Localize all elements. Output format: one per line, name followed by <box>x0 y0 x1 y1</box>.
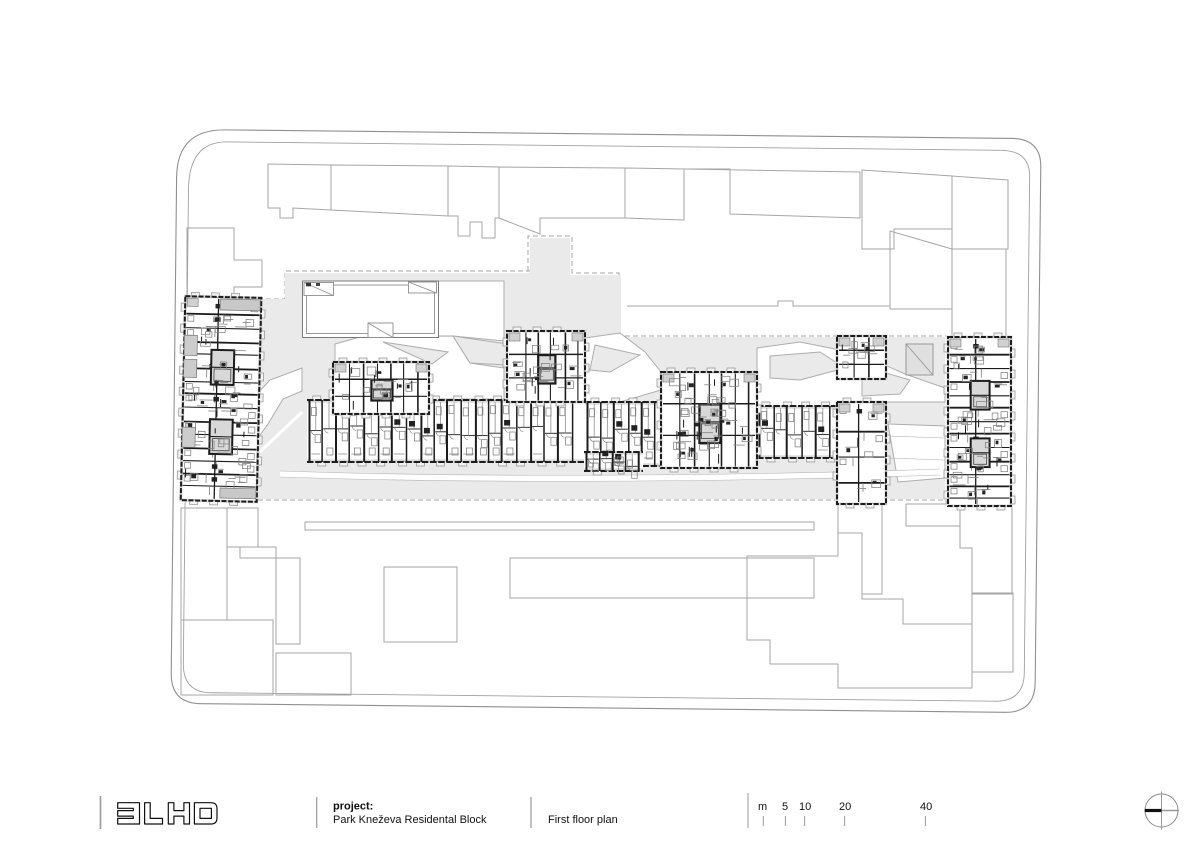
svg-text:20: 20 <box>839 801 851 813</box>
svg-text:First floor plan: First floor plan <box>548 814 618 826</box>
svg-text:project:: project: <box>333 801 373 813</box>
svg-text:40: 40 <box>920 801 932 813</box>
svg-text:Park Kneževa Residental Block: Park Kneževa Residental Block <box>333 814 487 826</box>
svg-text:10: 10 <box>799 801 811 813</box>
svg-text:5: 5 <box>782 801 788 813</box>
svg-text:m: m <box>758 801 767 813</box>
